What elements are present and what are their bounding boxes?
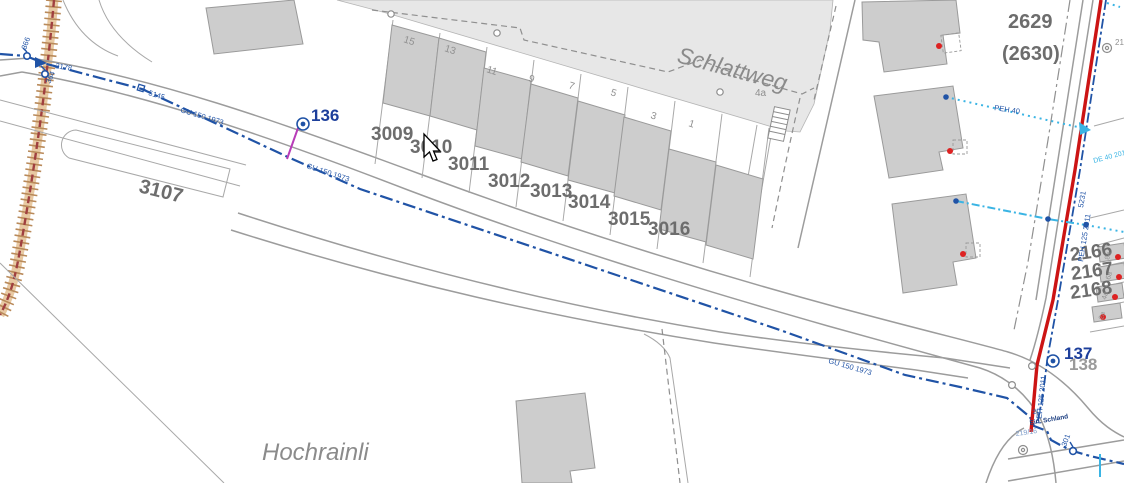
house-number: 3 [649,110,658,122]
building-house-13 [430,38,486,130]
house-number: 4a [755,88,767,99]
parcel-number: 3107 [137,176,186,208]
pipe-node [1045,216,1051,222]
pipe-label-de40: DE 40 2011 [1093,149,1124,165]
parcel-number: 3016 [648,219,690,240]
house-number: 9 [527,73,536,85]
survey-point [1103,44,1112,53]
parcel-number: 3009 [371,124,413,145]
hydrant-137[interactable] [1047,355,1059,367]
building [862,0,960,72]
building-house-1 [706,165,763,259]
boundary-node [388,11,394,17]
boundary-node [494,30,500,36]
house-connection [947,148,953,154]
parcel-number: (2630) [1002,43,1060,65]
parcel-line [644,334,688,483]
street-name-hochrainli: Hochrainli [262,439,369,466]
node-label-366: 366 [19,36,32,51]
parcel-number: 3011 [448,154,490,175]
node-label-21: 21 [1115,38,1124,47]
house-connection [960,251,966,257]
building-house-5 [614,117,671,210]
pipe-label-gu150: GU 150 1973 [827,356,872,377]
node-label-301: 301 [1059,433,1072,448]
parcel-number: 3013 [530,181,572,202]
crossing-curve [99,0,152,62]
parcel-line [0,263,224,483]
pipe-node [953,198,959,204]
house-connection [1116,274,1122,280]
boundary-node [717,89,723,95]
building [892,194,976,293]
node-label-5145: 5145 [147,88,166,101]
parcel-line [1090,210,1124,218]
house-number: 5 [609,87,618,99]
pipe-label-peh40: PEH 40 [994,103,1021,116]
building-small [1092,303,1122,322]
house-connection [936,43,942,49]
boundary-node [1009,382,1016,389]
building-house-11 [475,68,531,159]
house-connection [1115,254,1121,260]
building [874,86,963,178]
building [516,393,595,483]
survey-point [1019,446,1028,455]
node-label-219-16: 219/16 [1015,428,1037,438]
pipe-label-gu150: GU 150 1973 [305,161,350,183]
house-number: 7 [567,80,576,92]
service-stub [1107,3,1120,7]
hydrant-lead-magenta [287,128,298,159]
parcel-number: 3014 [568,192,611,213]
pipe-label-gu150: GU 150 1973 [179,105,224,127]
parcel-line [1094,118,1124,126]
parcel-number: 3012 [488,171,530,192]
road-edge [0,72,22,76]
gis-map-canvas[interactable]: Schlattweg Hochrainli 3107 3009 3010 301… [0,0,1124,483]
parcel-number: 3015 [608,209,651,230]
service-pipe-de40-cont [1086,225,1124,232]
fitting-5145[interactable] [137,84,149,93]
parcel-line [1090,326,1124,332]
crossing-curve [63,0,118,56]
building-house-9 [521,84,578,176]
road-edge [1008,461,1124,481]
building [206,0,303,54]
parcel-number: 2629 [1008,11,1053,33]
pipe-node [943,94,949,100]
hydrant-136[interactable] [297,118,309,130]
hydrant-label-137: 137 [1064,344,1092,363]
node-label-5231: 5231 [1076,190,1088,208]
node-label-2178: 2178 [55,61,73,73]
house-number: 1 [687,118,696,130]
boundary-node [1029,363,1036,370]
map-svg[interactable]: Schlattweg Hochrainli 3107 3009 3010 301… [0,0,1124,483]
road-edge [231,230,968,378]
hydrant-label-136: 136 [311,106,339,125]
valve-301[interactable] [1070,442,1077,454]
